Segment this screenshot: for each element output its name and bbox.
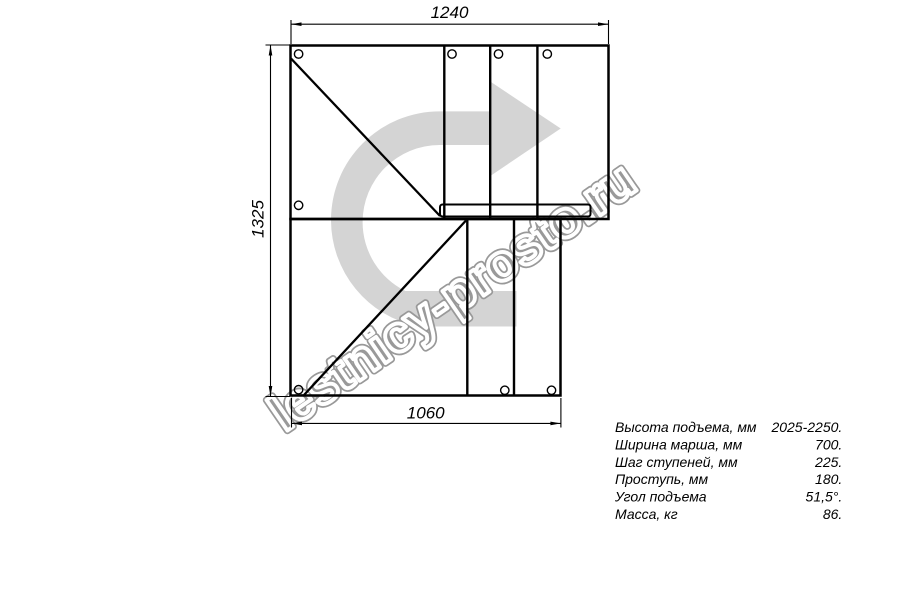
svg-text:180.: 180.	[815, 471, 842, 487]
svg-text:2025-2250.: 2025-2250.	[770, 419, 842, 435]
svg-text:700.: 700.	[815, 436, 842, 452]
svg-text:51,5°.: 51,5°.	[806, 489, 843, 505]
svg-text:lestnicy-prosto.ru: lestnicy-prosto.ru	[258, 151, 645, 442]
svg-text:Проступь, мм: Проступь, мм	[615, 471, 709, 487]
svg-text:Угол подъема: Угол подъема	[614, 489, 707, 505]
svg-text:225.: 225.	[814, 454, 842, 470]
svg-text:1240: 1240	[431, 3, 469, 22]
svg-text:1325: 1325	[249, 200, 268, 238]
svg-text:Высота подъема, мм: Высота подъема, мм	[615, 419, 757, 435]
svg-text:Ширина марша, мм: Ширина марша, мм	[615, 436, 743, 452]
svg-text:86.: 86.	[823, 506, 842, 522]
svg-text:Масса, кг: Масса, кг	[615, 506, 678, 522]
svg-text:1060: 1060	[407, 403, 445, 422]
svg-text:Шаг ступеней, мм: Шаг ступеней, мм	[615, 454, 738, 470]
